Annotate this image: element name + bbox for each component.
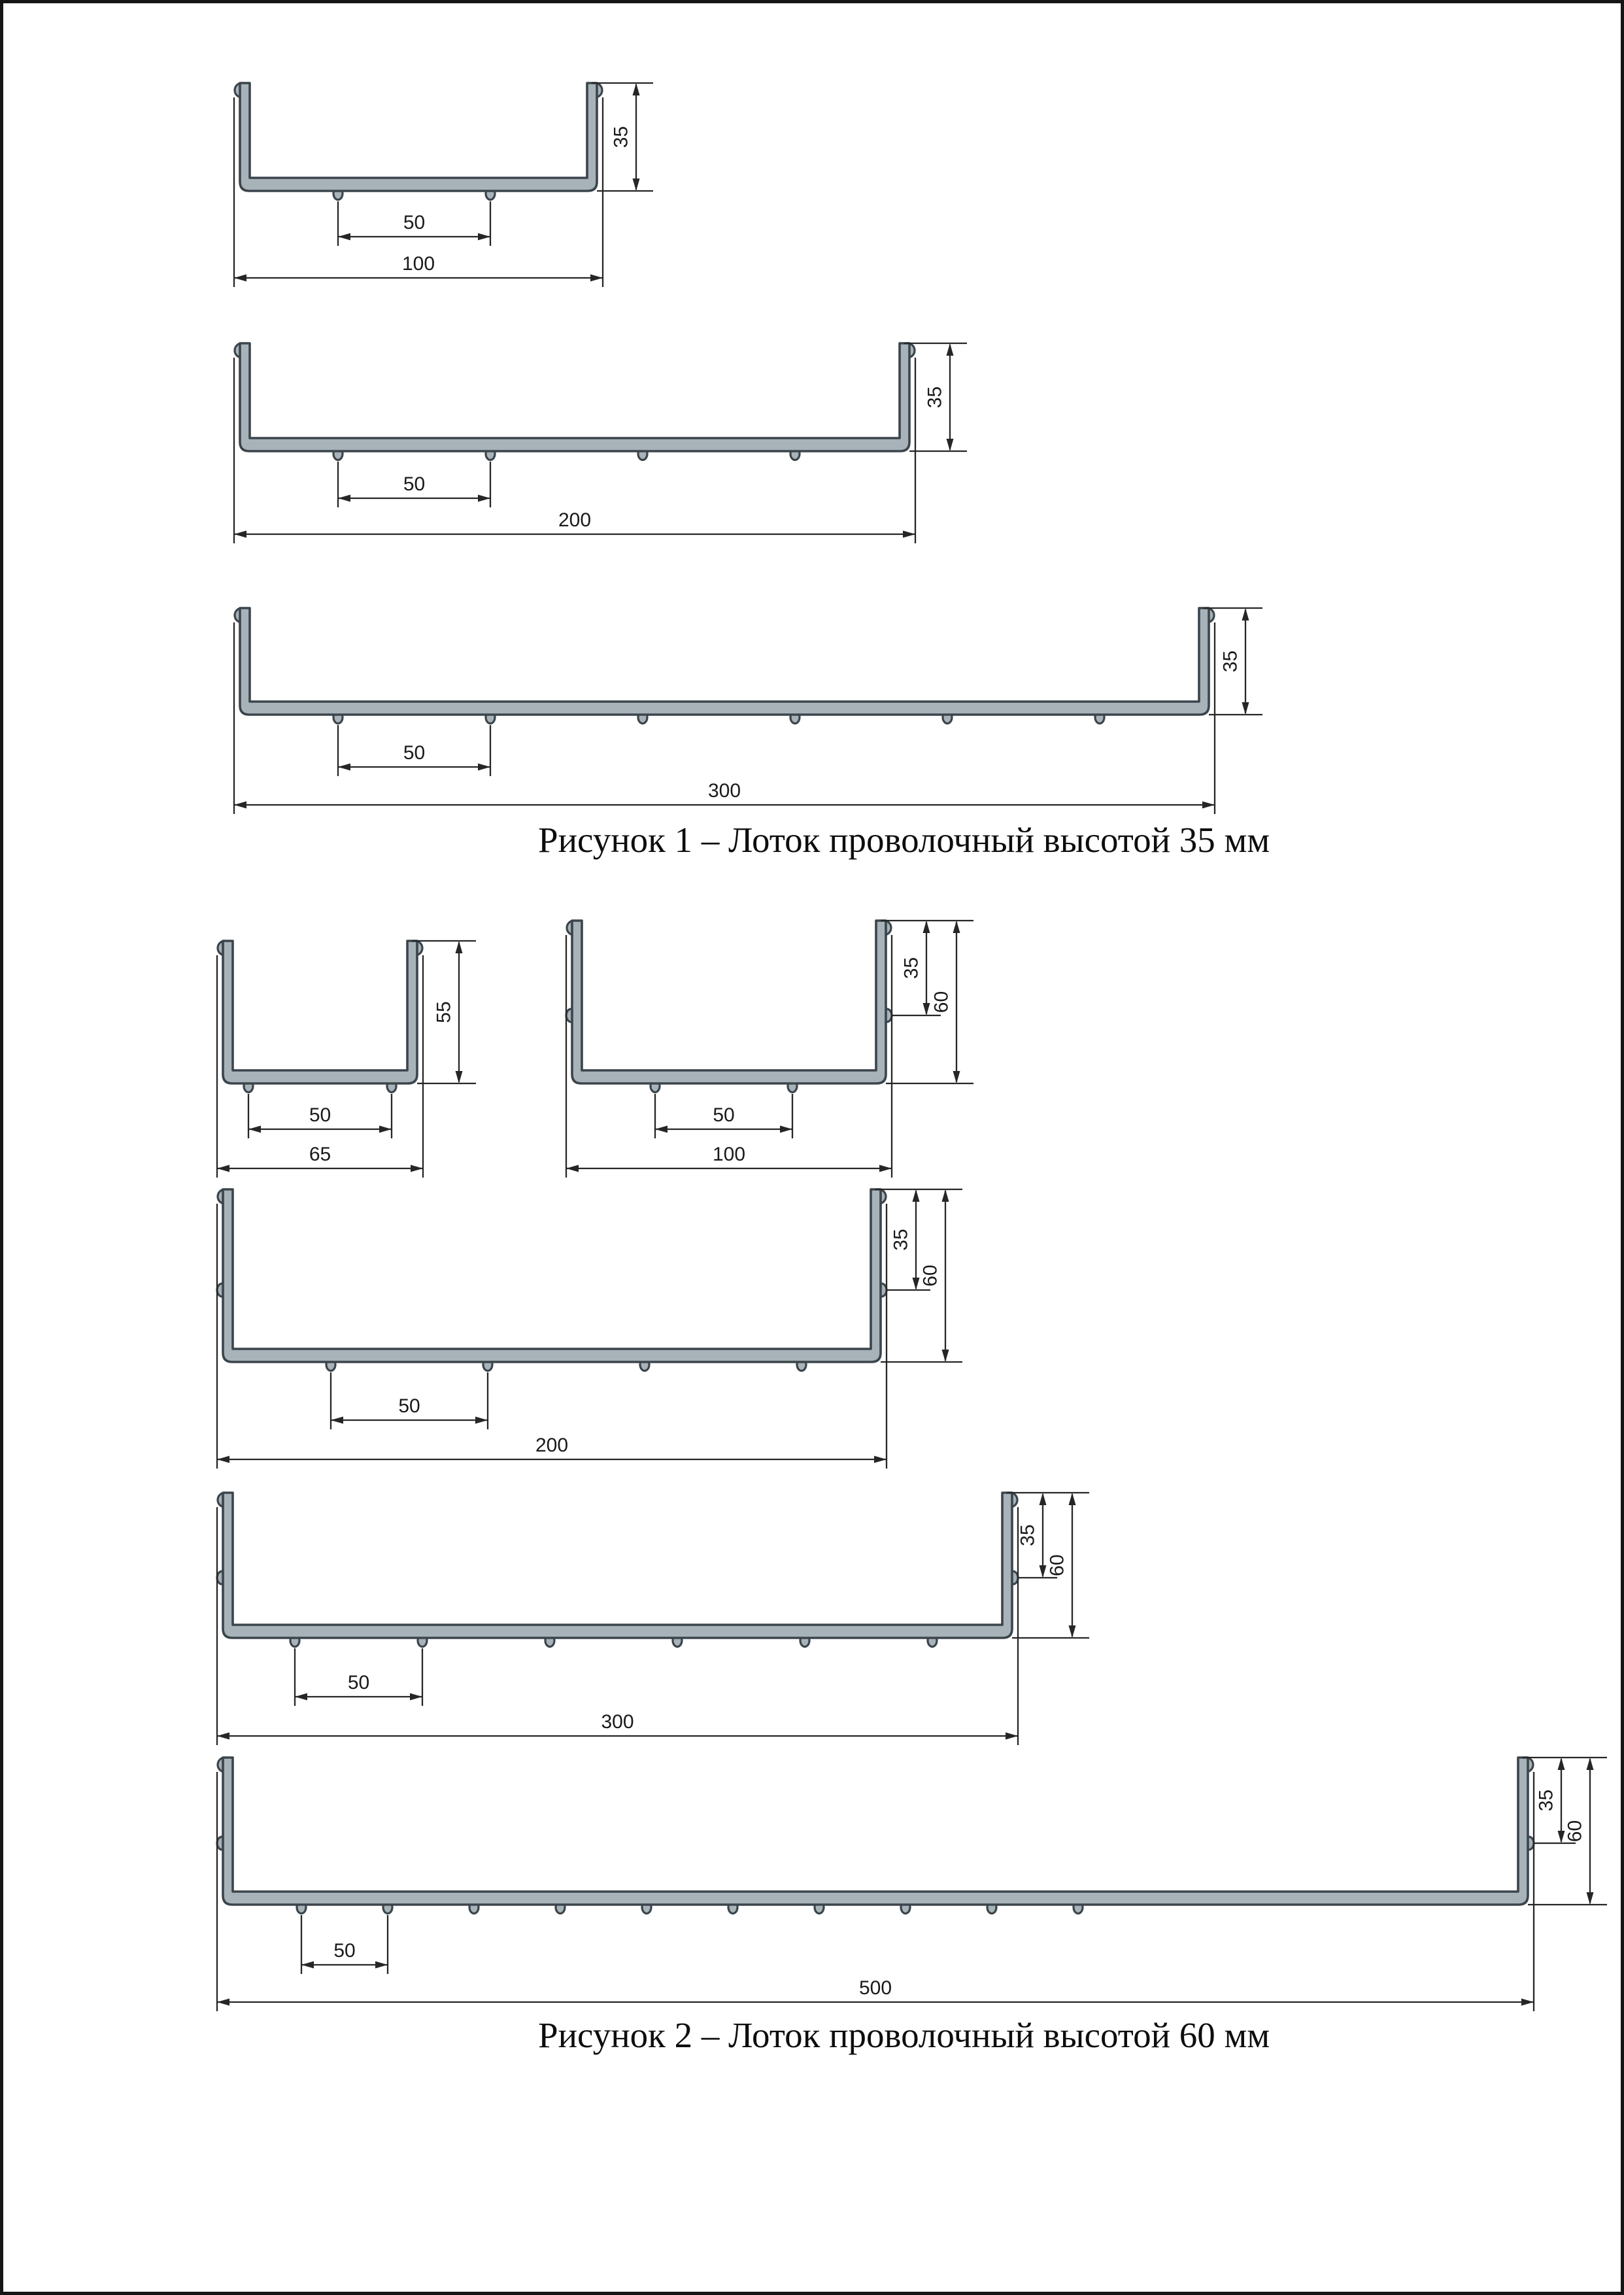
dimensions-300x60: 356050300 bbox=[217, 1493, 1089, 1745]
tray-profile-200x60: 356050200 bbox=[217, 1189, 962, 1469]
tray-cross-section bbox=[223, 1189, 881, 1362]
dimension-arrow-icon bbox=[942, 1350, 949, 1362]
dimension-arrow-icon bbox=[295, 1693, 307, 1701]
dimension-arrow-icon bbox=[234, 531, 246, 538]
height-dimension-label: 35 bbox=[924, 386, 946, 408]
tray-profile-65x55: 555065 bbox=[217, 941, 476, 1178]
dimension-arrow-icon bbox=[338, 495, 350, 502]
tray-profile-300x35: 3550300 bbox=[234, 608, 1262, 814]
dimension-arrow-icon bbox=[375, 1962, 388, 1969]
technical-drawing-canvas: 3550100355020035503005550653560501003560… bbox=[3, 3, 1621, 2292]
dimension-arrow-icon bbox=[1069, 1493, 1076, 1505]
tray-cross-section bbox=[240, 83, 597, 191]
tray-cross-section bbox=[240, 343, 909, 451]
dimension-arrow-icon bbox=[410, 1693, 422, 1701]
spacing-dimension-label: 50 bbox=[403, 473, 425, 495]
width-dimension-label: 300 bbox=[708, 780, 741, 802]
height-dimension-label: 60 bbox=[920, 1265, 941, 1286]
height-dimension-label: 60 bbox=[931, 991, 953, 1013]
dimensions-500x60: 356050500 bbox=[217, 1758, 1607, 2011]
dimension-arrow-icon bbox=[655, 1126, 668, 1133]
spacing-dimension-label: 50 bbox=[403, 742, 425, 764]
dimension-arrow-icon bbox=[923, 921, 930, 933]
dimension-arrow-icon bbox=[1069, 1625, 1076, 1638]
dimension-arrow-icon bbox=[1040, 1565, 1047, 1578]
height-dimension-label: 35 bbox=[611, 126, 632, 148]
tray-profile-100x35: 3550100 bbox=[234, 83, 653, 287]
dimension-arrow-icon bbox=[475, 1417, 488, 1424]
dimension-arrow-icon bbox=[1040, 1493, 1047, 1505]
dimension-arrow-icon bbox=[1587, 1758, 1594, 1770]
dimension-arrow-icon bbox=[590, 275, 603, 282]
spacing-dimension-label: 50 bbox=[348, 1672, 369, 1693]
dimension-arrow-icon bbox=[1006, 1733, 1018, 1740]
width-dimension-label: 100 bbox=[402, 253, 435, 275]
dimension-arrow-icon bbox=[1202, 802, 1215, 809]
dimension-arrow-icon bbox=[1242, 608, 1249, 620]
dimension-arrow-icon bbox=[566, 1165, 579, 1172]
height-dimension-label: 60 bbox=[1047, 1554, 1068, 1576]
dimensions-65x55: 555065 bbox=[217, 941, 476, 1178]
height-dimension-label: 35 bbox=[901, 957, 922, 979]
figure-1-caption: Рисунок 1 – Лоток проволочный высотой 35… bbox=[538, 819, 1453, 860]
dimension-arrow-icon bbox=[913, 1189, 920, 1202]
dimension-arrow-icon bbox=[903, 531, 915, 538]
dimension-arrow-icon bbox=[874, 1456, 887, 1463]
height-dimension-label: 35 bbox=[1220, 651, 1242, 672]
dimension-arrow-icon bbox=[1521, 1999, 1534, 2006]
dimension-arrow-icon bbox=[379, 1126, 392, 1133]
dimensions-100x60: 356050100 bbox=[566, 921, 973, 1178]
dimension-arrow-icon bbox=[217, 1999, 229, 2006]
tray-cross-section bbox=[223, 941, 417, 1083]
tray-cross-section bbox=[240, 608, 1209, 715]
dimension-arrow-icon bbox=[456, 1071, 463, 1083]
spacing-dimension-label: 50 bbox=[309, 1104, 331, 1126]
height-dimension-label: 55 bbox=[433, 1001, 455, 1023]
dimension-arrow-icon bbox=[947, 439, 954, 451]
dimension-arrow-icon bbox=[301, 1962, 314, 1969]
dimension-arrow-icon bbox=[338, 764, 350, 771]
dimension-arrow-icon bbox=[1587, 1892, 1594, 1905]
width-dimension-label: 300 bbox=[601, 1711, 634, 1733]
width-dimension-label: 200 bbox=[535, 1435, 568, 1456]
dimension-arrow-icon bbox=[217, 1165, 229, 1172]
dimension-arrow-icon bbox=[1558, 1758, 1565, 1770]
dimension-arrow-icon bbox=[633, 83, 640, 95]
height-dimension-label: 35 bbox=[1017, 1524, 1039, 1546]
tray-cross-section bbox=[572, 921, 886, 1083]
dimension-arrow-icon bbox=[780, 1126, 792, 1133]
dimension-arrow-icon bbox=[234, 802, 246, 809]
dimension-arrow-icon bbox=[217, 1456, 229, 1463]
tray-profile-500x60: 356050500 bbox=[217, 1758, 1607, 2011]
dimension-arrow-icon bbox=[234, 275, 246, 282]
width-dimension-label: 200 bbox=[558, 509, 591, 531]
dimension-arrow-icon bbox=[331, 1417, 343, 1424]
width-dimension-label: 500 bbox=[859, 1977, 892, 1999]
dimension-arrow-icon bbox=[411, 1165, 423, 1172]
dimension-arrow-icon bbox=[947, 343, 954, 356]
spacing-dimension-label: 50 bbox=[713, 1104, 734, 1126]
dimension-arrow-icon bbox=[1242, 702, 1249, 715]
dimension-arrow-icon bbox=[248, 1126, 261, 1133]
dimension-arrow-icon bbox=[953, 921, 960, 933]
dimension-arrow-icon bbox=[478, 764, 490, 771]
height-dimension-label: 35 bbox=[890, 1229, 912, 1250]
spacing-dimension-label: 50 bbox=[398, 1395, 420, 1417]
height-dimension-label: 60 bbox=[1565, 1820, 1586, 1842]
dimension-arrow-icon bbox=[478, 495, 490, 502]
spacing-dimension-label: 50 bbox=[403, 212, 425, 233]
spacing-dimension-label: 50 bbox=[333, 1940, 355, 1962]
dimension-arrow-icon bbox=[217, 1733, 229, 1740]
document-page: 3550100355020035503005550653560501003560… bbox=[0, 0, 1624, 2295]
dimension-arrow-icon bbox=[456, 941, 463, 953]
dimension-arrow-icon bbox=[953, 1071, 960, 1083]
tray-cross-section bbox=[223, 1758, 1528, 1905]
figure-2-caption: Рисунок 2 – Лоток проволочный высотой 60… bbox=[538, 2014, 1453, 2056]
width-dimension-label: 65 bbox=[309, 1144, 331, 1165]
dimension-arrow-icon bbox=[942, 1189, 949, 1202]
dimension-arrow-icon bbox=[338, 233, 350, 241]
width-dimension-label: 100 bbox=[713, 1144, 745, 1165]
dimension-arrow-icon bbox=[633, 178, 640, 191]
tray-cross-section bbox=[223, 1493, 1012, 1638]
dimensions-200x60: 356050200 bbox=[217, 1189, 962, 1469]
tray-profile-300x60: 356050300 bbox=[217, 1493, 1089, 1745]
height-dimension-label: 35 bbox=[1536, 1790, 1557, 1811]
dimension-arrow-icon bbox=[913, 1278, 920, 1290]
dimension-arrow-icon bbox=[879, 1165, 892, 1172]
dimension-arrow-icon bbox=[923, 1003, 930, 1015]
tray-profile-200x35: 3550200 bbox=[234, 343, 967, 543]
dimension-arrow-icon bbox=[478, 233, 490, 241]
tray-profile-100x60: 356050100 bbox=[566, 921, 973, 1178]
